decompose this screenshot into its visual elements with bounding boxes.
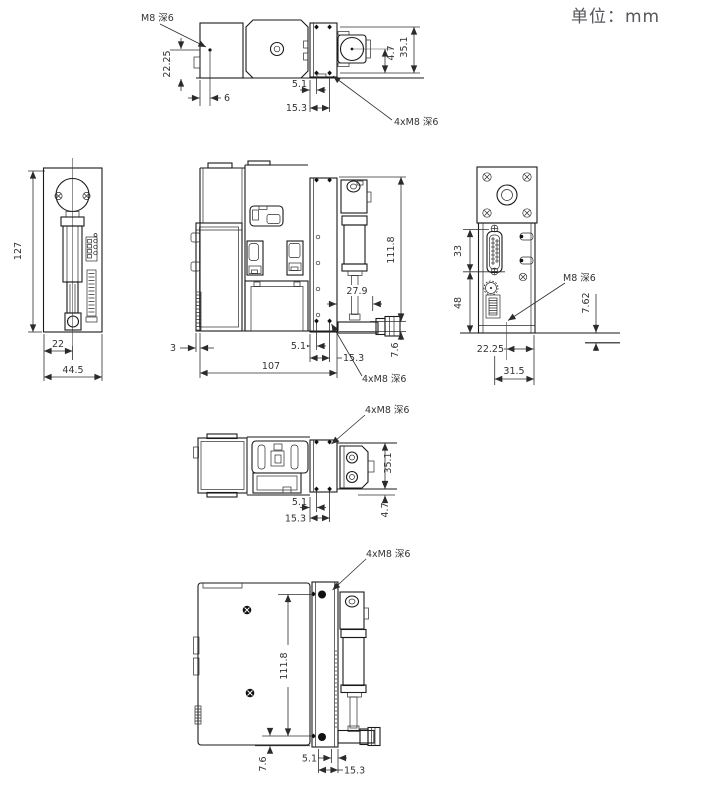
dim-label: 35.1 [383, 452, 394, 473]
dim-4xm8-note-rear: 4xM8 深6 [333, 549, 411, 590]
dim-label: 127 [13, 242, 24, 260]
dim-label: 7.62 [581, 292, 592, 313]
dim-label: 22.25 [162, 50, 173, 77]
front-mid-components [245, 206, 308, 331]
bottom-view: 4xM8 深6 35.1 4.7 5.1 1 [194, 405, 410, 525]
dim-m8-note-top: M8 深6 [141, 13, 206, 47]
dim-label: 15.3 [286, 103, 307, 114]
connector-and-scale [86, 234, 97, 323]
thread-note: 4xM8 深6 [362, 374, 406, 385]
dsub-connector [487, 225, 502, 275]
dim-label: 44.5 [62, 365, 83, 376]
thread-note: 4xM8 深6 [365, 405, 409, 416]
dim-label: 107 [262, 361, 280, 372]
dim-5-1-front: 5.1 [288, 323, 326, 362]
dim-label: 5.1 [291, 341, 306, 352]
bottom-carriage [247, 437, 310, 495]
dim-label: 5.1 [292, 79, 307, 90]
left-side-view: 127 22 44.5 [13, 158, 102, 381]
dim-label: 4.7 [386, 45, 397, 60]
dim-31-5-right: 31.5 [495, 356, 534, 385]
dim-label: 111.8 [386, 236, 397, 263]
dim-label: 35.1 [399, 36, 410, 57]
top-view-motor-block [246, 20, 308, 78]
dim-label: 7.6 [258, 756, 269, 771]
front-left-block [191, 223, 242, 331]
dim-6-top: 6 [188, 80, 230, 106]
bottom-left-block [194, 434, 248, 497]
dim-111-8-rear: 111.8 [262, 595, 312, 737]
rear-mount-rail [311, 582, 338, 747]
dim-label: 48 [453, 297, 464, 309]
dim-label: 7.6 [390, 342, 401, 357]
right-side-view: 33 48 M8 深6 7.62 22.25 [453, 167, 620, 385]
dim-7-62-right: 7.62 [581, 292, 596, 351]
dim-label: 33 [453, 245, 464, 257]
dim-3-front: 3 [170, 333, 214, 355]
right-side-details [484, 233, 533, 318]
dim-label: 27.9 [346, 286, 367, 297]
dim-22-25-right: 22.25 [468, 335, 534, 385]
dim-15-3-rear: 15.3 [318, 749, 365, 777]
front-mount-rail [310, 178, 337, 333]
motor-plate [477, 167, 537, 223]
dim-label: 31.5 [503, 366, 524, 377]
dim-label: 22.25 [477, 344, 504, 355]
dim-label: 22 [52, 339, 64, 350]
dim-5-1-rear: 5.1 [302, 749, 347, 765]
dim-7-6-front: 7.6 [339, 313, 406, 358]
rear-view: 4xM8 深6 111.8 7.6 5.1 [194, 549, 411, 777]
technical-drawing-page: 单位：mm [0, 0, 703, 796]
dim-4xm8-note-bottom: 4xM8 深6 [332, 405, 410, 444]
dim-label: 4.7 [380, 502, 391, 517]
dim-label: 15.3 [344, 766, 365, 777]
thread-note: 4xM8 深6 [366, 549, 410, 560]
thread-note: M8 深6 [141, 13, 174, 24]
dim-label: 5.1 [292, 497, 307, 508]
thread-note: M8 深6 [563, 273, 596, 284]
dim-label: 15.3 [285, 514, 306, 525]
dim-label: 5.1 [302, 754, 317, 765]
dim-label: 111.8 [279, 652, 290, 679]
top-view-left-block [194, 23, 243, 106]
top-view: M8 深6 22.25 6 5.1 [141, 13, 438, 128]
dim-label: 6 [224, 93, 230, 104]
front-view: 111.8 27.9 7.6 3 [170, 161, 407, 385]
rear-syringe-assembly [338, 592, 380, 746]
dim-4xm8-note-top: 4xM8 深6 [333, 76, 438, 128]
dim-7-6-rear: 7.6 [255, 728, 310, 772]
dim-48-right: 48 [453, 272, 470, 333]
bottom-mount-rail [310, 440, 337, 493]
dim-127-left: 127 [13, 171, 45, 332]
drawing-canvas: M8 深6 22.25 6 5.1 [0, 0, 703, 796]
top-view-mount-rail [310, 23, 337, 77]
thread-note: 4xM8 深6 [394, 117, 438, 128]
top-view-valve-clamp [338, 32, 392, 67]
dim-label: 3 [170, 343, 176, 354]
dim-27-9-front: 27.9 [327, 285, 382, 311]
